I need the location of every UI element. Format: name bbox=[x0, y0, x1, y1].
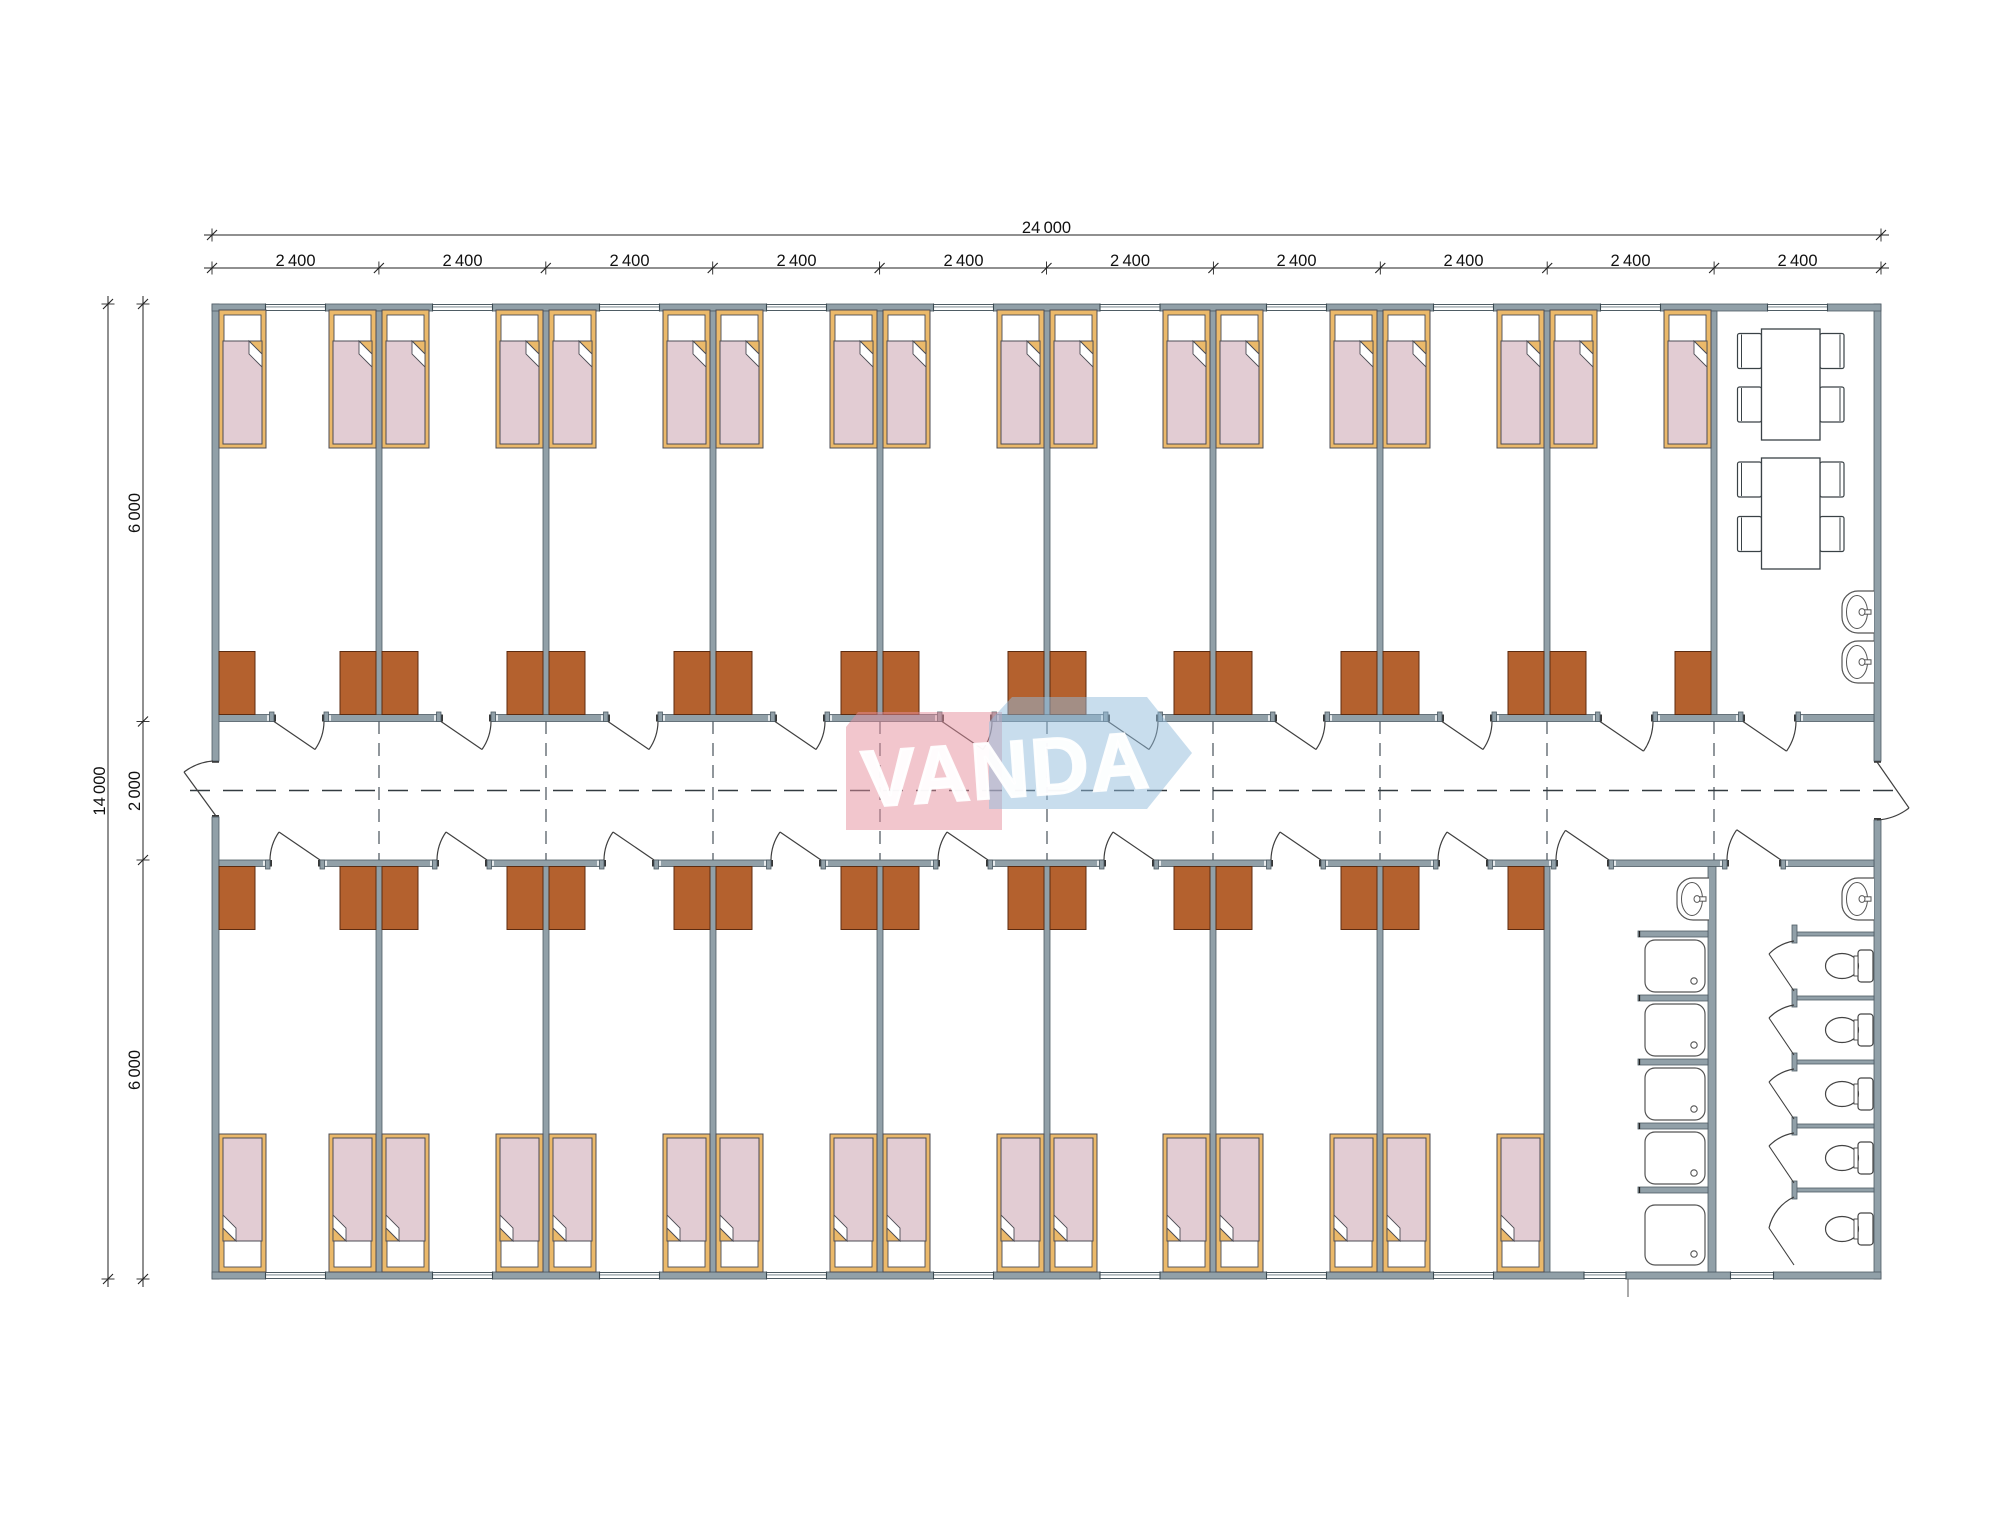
svg-text:2 400: 2 400 bbox=[943, 252, 983, 270]
svg-text:2 400: 2 400 bbox=[442, 252, 482, 270]
svg-text:2 000: 2 000 bbox=[126, 771, 144, 811]
svg-text:6 000: 6 000 bbox=[126, 493, 144, 533]
svg-text:2 400: 2 400 bbox=[1443, 252, 1483, 270]
svg-text:24 000: 24 000 bbox=[1022, 219, 1071, 237]
svg-text:2 400: 2 400 bbox=[1276, 252, 1316, 270]
svg-text:6 000: 6 000 bbox=[126, 1050, 144, 1090]
svg-text:2 400: 2 400 bbox=[1777, 252, 1817, 270]
svg-text:2 400: 2 400 bbox=[776, 252, 816, 270]
svg-text:2 400: 2 400 bbox=[275, 252, 315, 270]
svg-text:2 400: 2 400 bbox=[1110, 252, 1150, 270]
svg-text:2 400: 2 400 bbox=[1610, 252, 1650, 270]
svg-text:2 400: 2 400 bbox=[609, 252, 649, 270]
svg-text:14 000: 14 000 bbox=[91, 766, 109, 815]
